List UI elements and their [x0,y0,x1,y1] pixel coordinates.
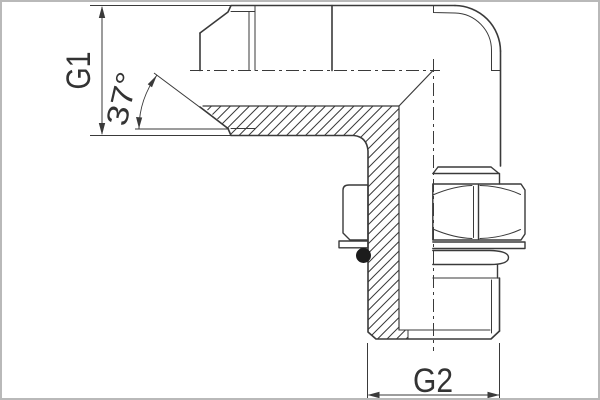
locknut-flange [433,167,500,184]
oring-right-profile [433,251,509,265]
hex-locknut-outside-view [433,184,525,240]
g1-arrow-top [99,6,105,18]
elbow-fitting-drawing: G1 37° G2 [2,2,600,400]
stud-thread-right [433,265,500,334]
drawing-canvas: G1 37° G2 [0,0,600,400]
bend-outer-arc [455,6,501,52]
hex-chamfer-arcs [433,186,521,239]
angle-cone-leg [154,73,229,129]
g2-arrow-left [368,392,380,398]
angle-arrow-bottom [136,117,142,129]
g2-arrow-right [488,392,500,398]
oring-section [356,248,371,263]
g2-dimension: G2 [368,343,500,400]
bore-junction-diagonal [399,71,433,107]
port-counterbore-lines [399,330,490,339]
washer-section-left [339,241,368,248]
g1-label: G1 [60,52,98,90]
elbow-bend [434,6,501,167]
bend-inner-arc [455,13,501,71]
body-section-hatch [203,106,408,339]
g1-arrow-bottom [99,123,105,135]
washer-right [433,242,525,249]
g2-label: G2 [413,362,453,400]
angle-arrow-top [148,75,157,87]
bend-joint-tick [434,6,456,14]
angle-annotation: 37° [101,69,229,129]
locknut-section-left [343,185,368,240]
flare-cone-bottom [200,107,500,339]
flare-cone-top [200,6,455,34]
horizontal-branch-outline [200,6,500,340]
